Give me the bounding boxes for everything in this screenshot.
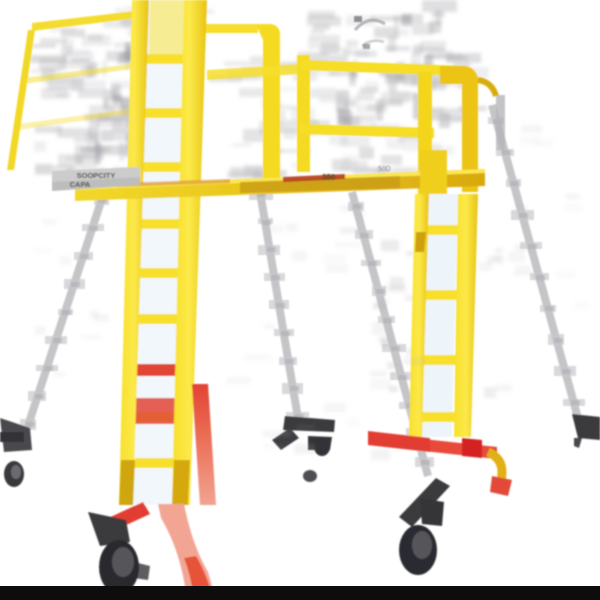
svg-text:50D: 50D [378,166,391,173]
svg-text:350: 350 [322,173,336,182]
svg-text:SOOPCITY: SOOPCITY [77,171,116,180]
svg-text:CAPA: CAPA [70,180,91,189]
